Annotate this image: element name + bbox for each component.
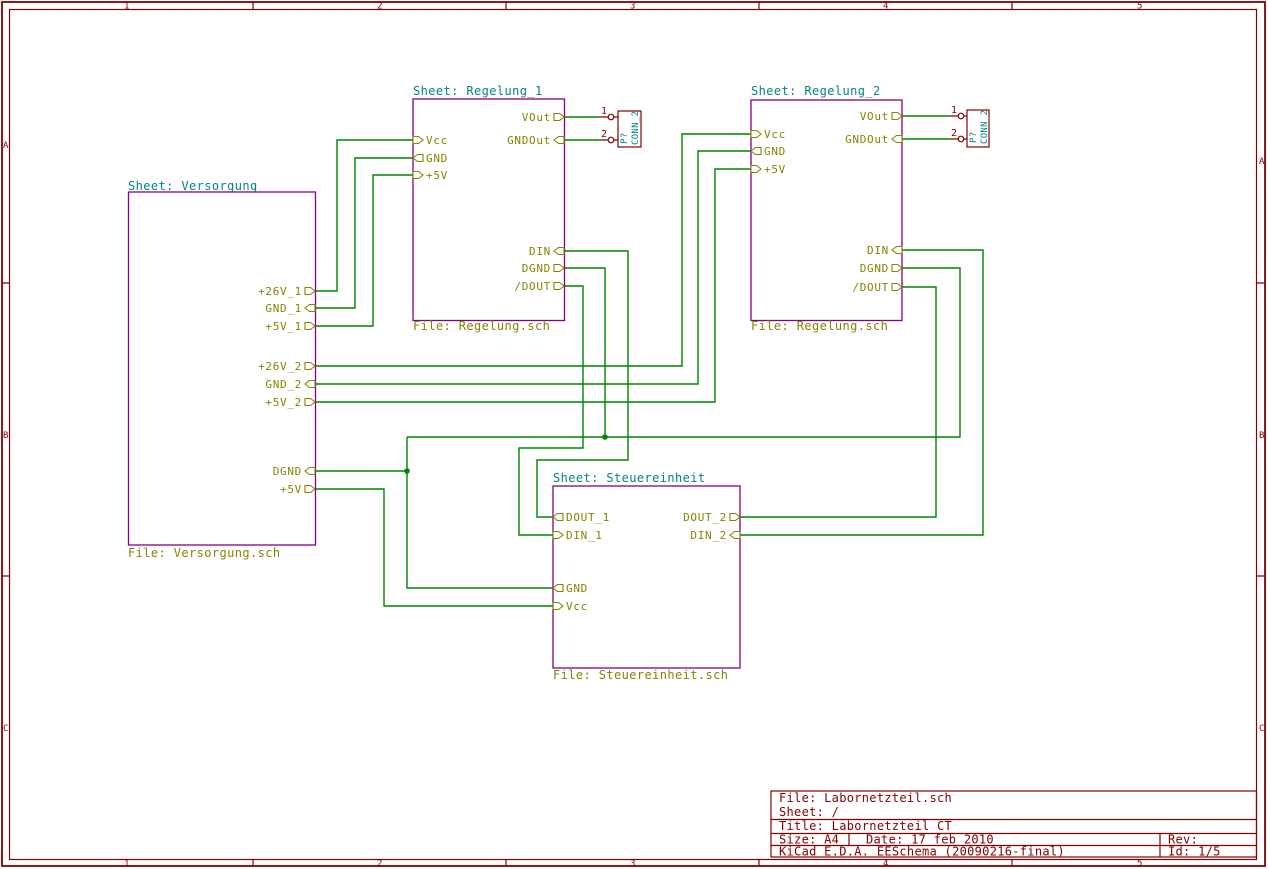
sheet-pin-label[interactable]: Vcc — [426, 134, 448, 147]
connector-conn2-1[interactable]: 1 2 P? CONN_2 — [600, 106, 641, 147]
pin-arrow-icon[interactable] — [305, 468, 315, 475]
sheet-file-label[interactable]: File: Steuereinheit.sch — [553, 668, 728, 682]
sheet-pin-label[interactable]: GND_1 — [265, 302, 302, 315]
connector-value[interactable]: CONN_2 — [631, 111, 641, 145]
wire-26v1-vcc[interactable] — [315, 140, 413, 291]
sheet-pin-label[interactable]: GND_2 — [265, 378, 302, 391]
sheet-pin-label[interactable]: +26V_1 — [258, 285, 302, 298]
pin-arrow-icon[interactable] — [751, 166, 761, 173]
wire-dgnd-net[interactable] — [315, 268, 960, 588]
sheet-pin-label[interactable]: GND — [566, 582, 588, 595]
sheet-pin-label[interactable]: DIN_2 — [690, 529, 727, 542]
pin-number: 1 — [601, 106, 607, 117]
sheet-name-label[interactable]: Sheet: Versorgung — [128, 179, 258, 193]
sheet-pins: Vcc GND +5V VOut GNDOut DIN DGND /DOUT — [751, 110, 902, 294]
zone-label: 3 — [630, 2, 635, 12]
wire-vout2-conn[interactable] — [902, 116, 950, 139]
wire-5v1-5v[interactable] — [315, 175, 413, 326]
sheet-name-label[interactable]: Sheet: Steuereinheit — [553, 471, 706, 485]
pin-arrow-icon[interactable] — [553, 514, 563, 521]
pin-arrow-icon[interactable] — [554, 283, 564, 290]
pin-arrow-icon[interactable] — [413, 172, 423, 179]
pin-arrow-icon[interactable] — [553, 585, 563, 592]
title-block-generator: KiCad E.D.A. EESchema (20090216-final) — [779, 845, 1065, 859]
sheet-pin-label[interactable]: DIN_1 — [566, 529, 603, 542]
sheet-pin-label[interactable]: GND — [426, 152, 448, 165]
zone-label: 4 — [883, 859, 888, 869]
connector-ref[interactable]: P? — [969, 132, 979, 143]
connector-value[interactable]: CONN_2 — [980, 110, 990, 144]
pin-arrow-icon[interactable] — [305, 288, 315, 295]
sheet-pin-label[interactable]: DIN — [529, 245, 551, 258]
pin-arrow-icon[interactable] — [892, 113, 902, 120]
sheet-regelung-2[interactable]: Sheet: Regelung_2 File: Regelung.sch Vcc… — [751, 84, 902, 333]
pin-arrow-icon[interactable] — [892, 247, 902, 254]
pin-circle-icon — [608, 114, 614, 120]
zone-label: A — [3, 141, 9, 151]
pin-arrow-icon[interactable] — [305, 381, 315, 388]
pin-arrow-icon[interactable] — [892, 265, 902, 272]
connector-ref[interactable]: P? — [620, 133, 630, 144]
pin-arrow-icon[interactable] — [305, 399, 315, 406]
connector-conn2-2[interactable]: 1 2 P? CONN_2 — [950, 105, 990, 147]
pin-arrow-icon[interactable] — [554, 248, 564, 255]
title-block-file: File: Labornetzteil.sch — [779, 791, 952, 805]
sheet-pin-label[interactable]: DGND — [860, 262, 889, 275]
sheet-pin-label[interactable]: +5V — [426, 169, 448, 182]
pin-arrow-icon[interactable] — [554, 137, 564, 144]
pin-arrow-icon[interactable] — [751, 131, 761, 138]
sheet-pin-label[interactable]: /DOUT — [514, 280, 551, 293]
schematic-canvas[interactable]: 1 2 3 4 5 1 2 3 4 5 A B C A B C — [0, 0, 1268, 869]
wire-gnd1-gnd[interactable] — [315, 158, 413, 308]
pin-arrow-icon[interactable] — [730, 514, 740, 521]
sheet-pin-label[interactable]: DIN — [867, 244, 889, 257]
pin-arrow-icon[interactable] — [892, 136, 902, 143]
sheet-pin-label[interactable]: DGND — [273, 465, 302, 478]
sheet-pin-label[interactable]: +26V_2 — [258, 360, 302, 373]
pin-circle-icon — [608, 137, 614, 143]
sheet-pin-label[interactable]: GND — [764, 145, 786, 158]
pin-arrow-icon[interactable] — [730, 532, 740, 539]
title-block-sheet: Sheet: / — [779, 805, 839, 819]
sheet-file-label[interactable]: File: Versorgung.sch — [128, 546, 281, 560]
pin-arrow-icon[interactable] — [554, 265, 564, 272]
pin-arrow-icon[interactable] — [305, 363, 315, 370]
wires — [315, 116, 983, 606]
title-block: File: Labornetzteil.sch Sheet: / Title: … — [771, 791, 1257, 859]
pin-number: 1 — [951, 105, 957, 116]
pin-arrow-icon[interactable] — [553, 603, 563, 610]
sheet-pin-label[interactable]: VOut — [522, 111, 551, 124]
sheet-pin-label[interactable]: DOUT_2 — [683, 511, 727, 524]
pin-arrow-icon[interactable] — [305, 305, 315, 312]
zone-label: 4 — [883, 2, 888, 12]
zone-label: B — [1259, 431, 1264, 441]
zone-label: 2 — [377, 2, 382, 12]
title-block-id: Id: 1/5 — [1168, 845, 1221, 859]
sheet-file-label[interactable]: File: Regelung.sch — [413, 319, 550, 333]
sheet-name-label[interactable]: Sheet: Regelung_2 — [751, 84, 881, 98]
sheet-pin-label[interactable]: Vcc — [764, 128, 786, 141]
pin-arrow-icon[interactable] — [413, 155, 423, 162]
pin-arrow-icon[interactable] — [413, 137, 423, 144]
title-block-title: Title: Labornetzteil CT — [779, 819, 952, 833]
zone-label: A — [1259, 157, 1265, 167]
pin-number: 2 — [951, 128, 957, 139]
sheet-pins: Vcc GND +5V VOut GNDOut DIN DGND /DOUT — [413, 111, 564, 293]
sheet-pin-label[interactable]: +5V — [280, 483, 302, 496]
zone-label: B — [3, 431, 8, 441]
junction-dot[interactable] — [404, 468, 410, 474]
pin-arrow-icon[interactable] — [305, 486, 315, 493]
sheet-pin-label[interactable]: +5V — [764, 163, 786, 176]
sheet-pin-label[interactable]: GNDOut — [507, 134, 551, 147]
pin-circle-icon — [958, 113, 964, 119]
pin-arrow-icon[interactable] — [554, 114, 564, 121]
wire-vout1-conn[interactable] — [565, 117, 600, 140]
sheet-pin-label[interactable]: GNDOut — [845, 133, 889, 146]
sheet-pins: +26V_1 GND_1 +5V_1 +26V_2 GND_2 +5V_2 DG… — [258, 285, 315, 496]
zone-label: 1 — [124, 2, 129, 12]
sheet-steuereinheit[interactable]: Sheet: Steuereinheit File: Steuereinheit… — [553, 471, 740, 682]
sheet-name-label[interactable]: Sheet: Regelung_1 — [413, 84, 543, 98]
sheet-pin-label[interactable]: /DOUT — [852, 281, 889, 294]
pin-arrow-icon[interactable] — [892, 284, 902, 291]
sheet-pin-label[interactable]: DOUT_1 — [566, 511, 610, 524]
zone-label: C — [1259, 724, 1264, 734]
sheet-pin-label[interactable]: +5V_2 — [265, 396, 302, 409]
sheet-regelung-1[interactable]: Sheet: Regelung_1 File: Regelung.sch Vcc… — [413, 84, 565, 333]
zone-label: 1 — [124, 859, 129, 869]
sheet-pins: DOUT_1 DIN_1 GND Vcc DOUT_2 DIN_2 — [553, 511, 740, 613]
zone-label: 5 — [1137, 2, 1142, 12]
sheet-pin-label[interactable]: VOut — [860, 110, 889, 123]
zone-label: 5 — [1137, 859, 1142, 869]
pin-arrow-icon[interactable] — [553, 532, 563, 539]
sheet-file-label[interactable]: File: Regelung.sch — [751, 319, 888, 333]
zone-label: C — [3, 724, 8, 734]
sheet-pin-label[interactable]: Vcc — [566, 600, 588, 613]
sheet-versorgung[interactable]: Sheet: Versorgung File: Versorgung.sch +… — [128, 179, 316, 560]
pin-number: 2 — [601, 129, 607, 140]
sheet-pin-label[interactable]: DGND — [522, 262, 551, 275]
zone-label: 2 — [377, 859, 382, 869]
junction-dot[interactable] — [602, 434, 608, 440]
pin-arrow-icon[interactable] — [305, 323, 315, 330]
zone-label: 3 — [630, 859, 635, 869]
pin-arrow-icon[interactable] — [751, 148, 761, 155]
sheet-pin-label[interactable]: +5V_1 — [265, 320, 302, 333]
pin-circle-icon — [958, 136, 964, 142]
